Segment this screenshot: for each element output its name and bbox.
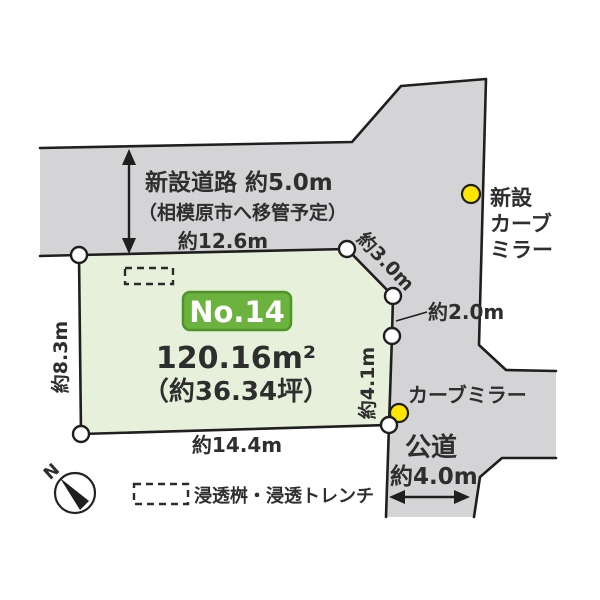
dim-right-upper: 約2.0m	[428, 300, 504, 324]
vertex-marker	[381, 417, 397, 433]
new-curve-mirror-marker	[462, 185, 480, 203]
compass: N	[40, 460, 95, 513]
dim-bottom: 約14.4m	[192, 433, 282, 457]
vertex-marker	[73, 426, 89, 442]
new-curve-mirror-label-1: 新設	[490, 186, 533, 210]
lot-number: No.14	[189, 295, 285, 329]
land-plot-diagram: No.14 120.16m² （約36.34坪） 新設道路 約5.0m （相模原…	[0, 0, 600, 600]
diagram-canvas: No.14 120.16m² （約36.34坪） 新設道路 約5.0m （相模原…	[0, 0, 600, 600]
vertex-marker	[71, 247, 87, 263]
dim-left: 約8.3m	[49, 321, 72, 393]
dim-top: 約12.6m	[178, 229, 268, 253]
lot-area-tsubo: （約36.34坪）	[143, 376, 329, 407]
vertex-marker	[384, 328, 400, 344]
new-curve-mirror-label-3: ミラー	[490, 238, 553, 262]
public-road-width: 約4.0m	[390, 463, 478, 490]
vertex-marker	[339, 241, 355, 257]
new-curve-mirror-label-2: カーブ	[490, 212, 552, 236]
curve-mirror-label: カーブミラー	[408, 383, 527, 407]
lot-area-m2: 120.16m²	[156, 341, 316, 376]
public-road-name: 公道	[405, 432, 457, 463]
legend-infiltration-label: 浸透桝・浸透トレンチ	[194, 485, 374, 507]
vertex-marker	[385, 288, 401, 304]
dim-right-lower: 約4.1m	[356, 347, 379, 419]
legend-dashed-box	[134, 484, 188, 504]
new-road-name: 新設道路 約5.0m	[145, 169, 333, 196]
new-road-note: （相模原市へ移管予定）	[138, 201, 347, 224]
